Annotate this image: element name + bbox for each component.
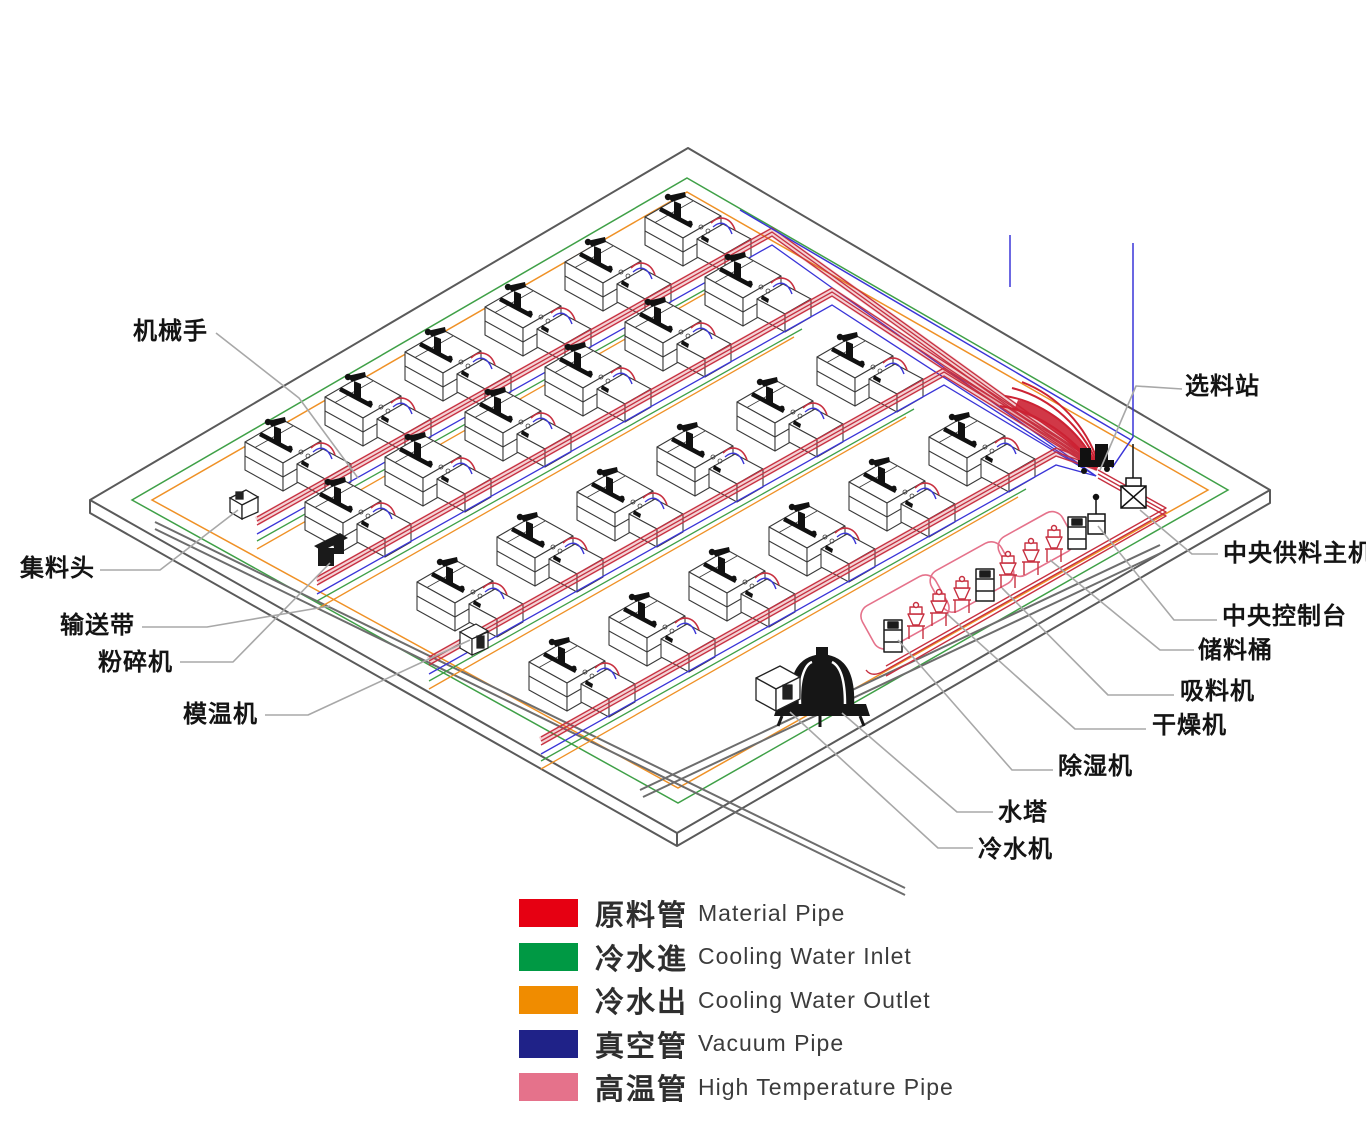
legend-label-zh: 冷水出 <box>595 979 688 1021</box>
legend-label-en: High Temperature Pipe <box>698 1074 954 1101</box>
label-chiller: 冷水机 <box>978 837 1053 863</box>
label-central-feeding-main-unit: 中央供料主机 <box>1223 541 1366 567</box>
legend-label-zh: 真空管 <box>595 1023 688 1065</box>
dryer-unit <box>1068 517 1086 549</box>
label-crusher: 粉碎机 <box>98 650 173 676</box>
legend-row-cooling-water-inlet: 冷水進 Cooling Water Inlet <box>519 942 954 972</box>
dryer-unit <box>884 620 902 652</box>
label-suction-machine: 吸料机 <box>1180 679 1255 705</box>
legend-row-material-pipe: 原料管 Material Pipe <box>519 898 954 928</box>
label-material-selection-station: 选料站 <box>1185 374 1260 400</box>
legend-row-cooling-water-outlet: 冷水出 Cooling Water Outlet <box>519 985 954 1015</box>
label-dryer: 干燥机 <box>1152 713 1227 739</box>
legend-label-en: Cooling Water Inlet <box>698 943 912 970</box>
legend-label-en: Cooling Water Outlet <box>698 987 931 1014</box>
high-temperature-pipe-swatch <box>519 1073 578 1101</box>
pipe-color-legend: 原料管 Material Pipe 冷水進 Cooling Water Inle… <box>519 898 954 1116</box>
cooling-water-outlet-swatch <box>519 986 578 1014</box>
legend-label-en: Material Pipe <box>698 900 845 927</box>
material-pipe-swatch <box>519 899 578 927</box>
label-robot-arm: 机械手 <box>133 319 208 345</box>
factory-diagram-page: 机械手 选料站 集料头 输送带 粉碎机 模温机 中央供料主机 中央控制台 储料桶… <box>0 0 1366 1130</box>
label-dehumidifier: 除湿机 <box>1058 754 1133 780</box>
label-storage-barrel: 储料桶 <box>1198 638 1273 664</box>
legend-label-zh: 冷水進 <box>595 936 688 978</box>
vacuum-pipe-swatch <box>519 1030 578 1058</box>
legend-row-vacuum-pipe: 真空管 Vacuum Pipe <box>519 1029 954 1059</box>
legend-label-en: Vacuum Pipe <box>698 1030 844 1057</box>
label-collection-head: 集料头 <box>20 556 95 582</box>
dryer-unit <box>976 569 994 601</box>
label-conveyor-belt: 输送带 <box>60 613 135 639</box>
legend-label-zh: 高温管 <box>595 1066 688 1108</box>
legend-label-zh: 原料管 <box>595 892 688 934</box>
label-water-tower: 水塔 <box>998 800 1048 826</box>
cooling-water-inlet-swatch <box>519 943 578 971</box>
legend-row-high-temperature-pipe: 高温管 High Temperature Pipe <box>519 1072 954 1102</box>
label-central-control-console: 中央控制台 <box>1222 604 1347 630</box>
label-mold-temp-controller: 模温机 <box>183 702 258 728</box>
